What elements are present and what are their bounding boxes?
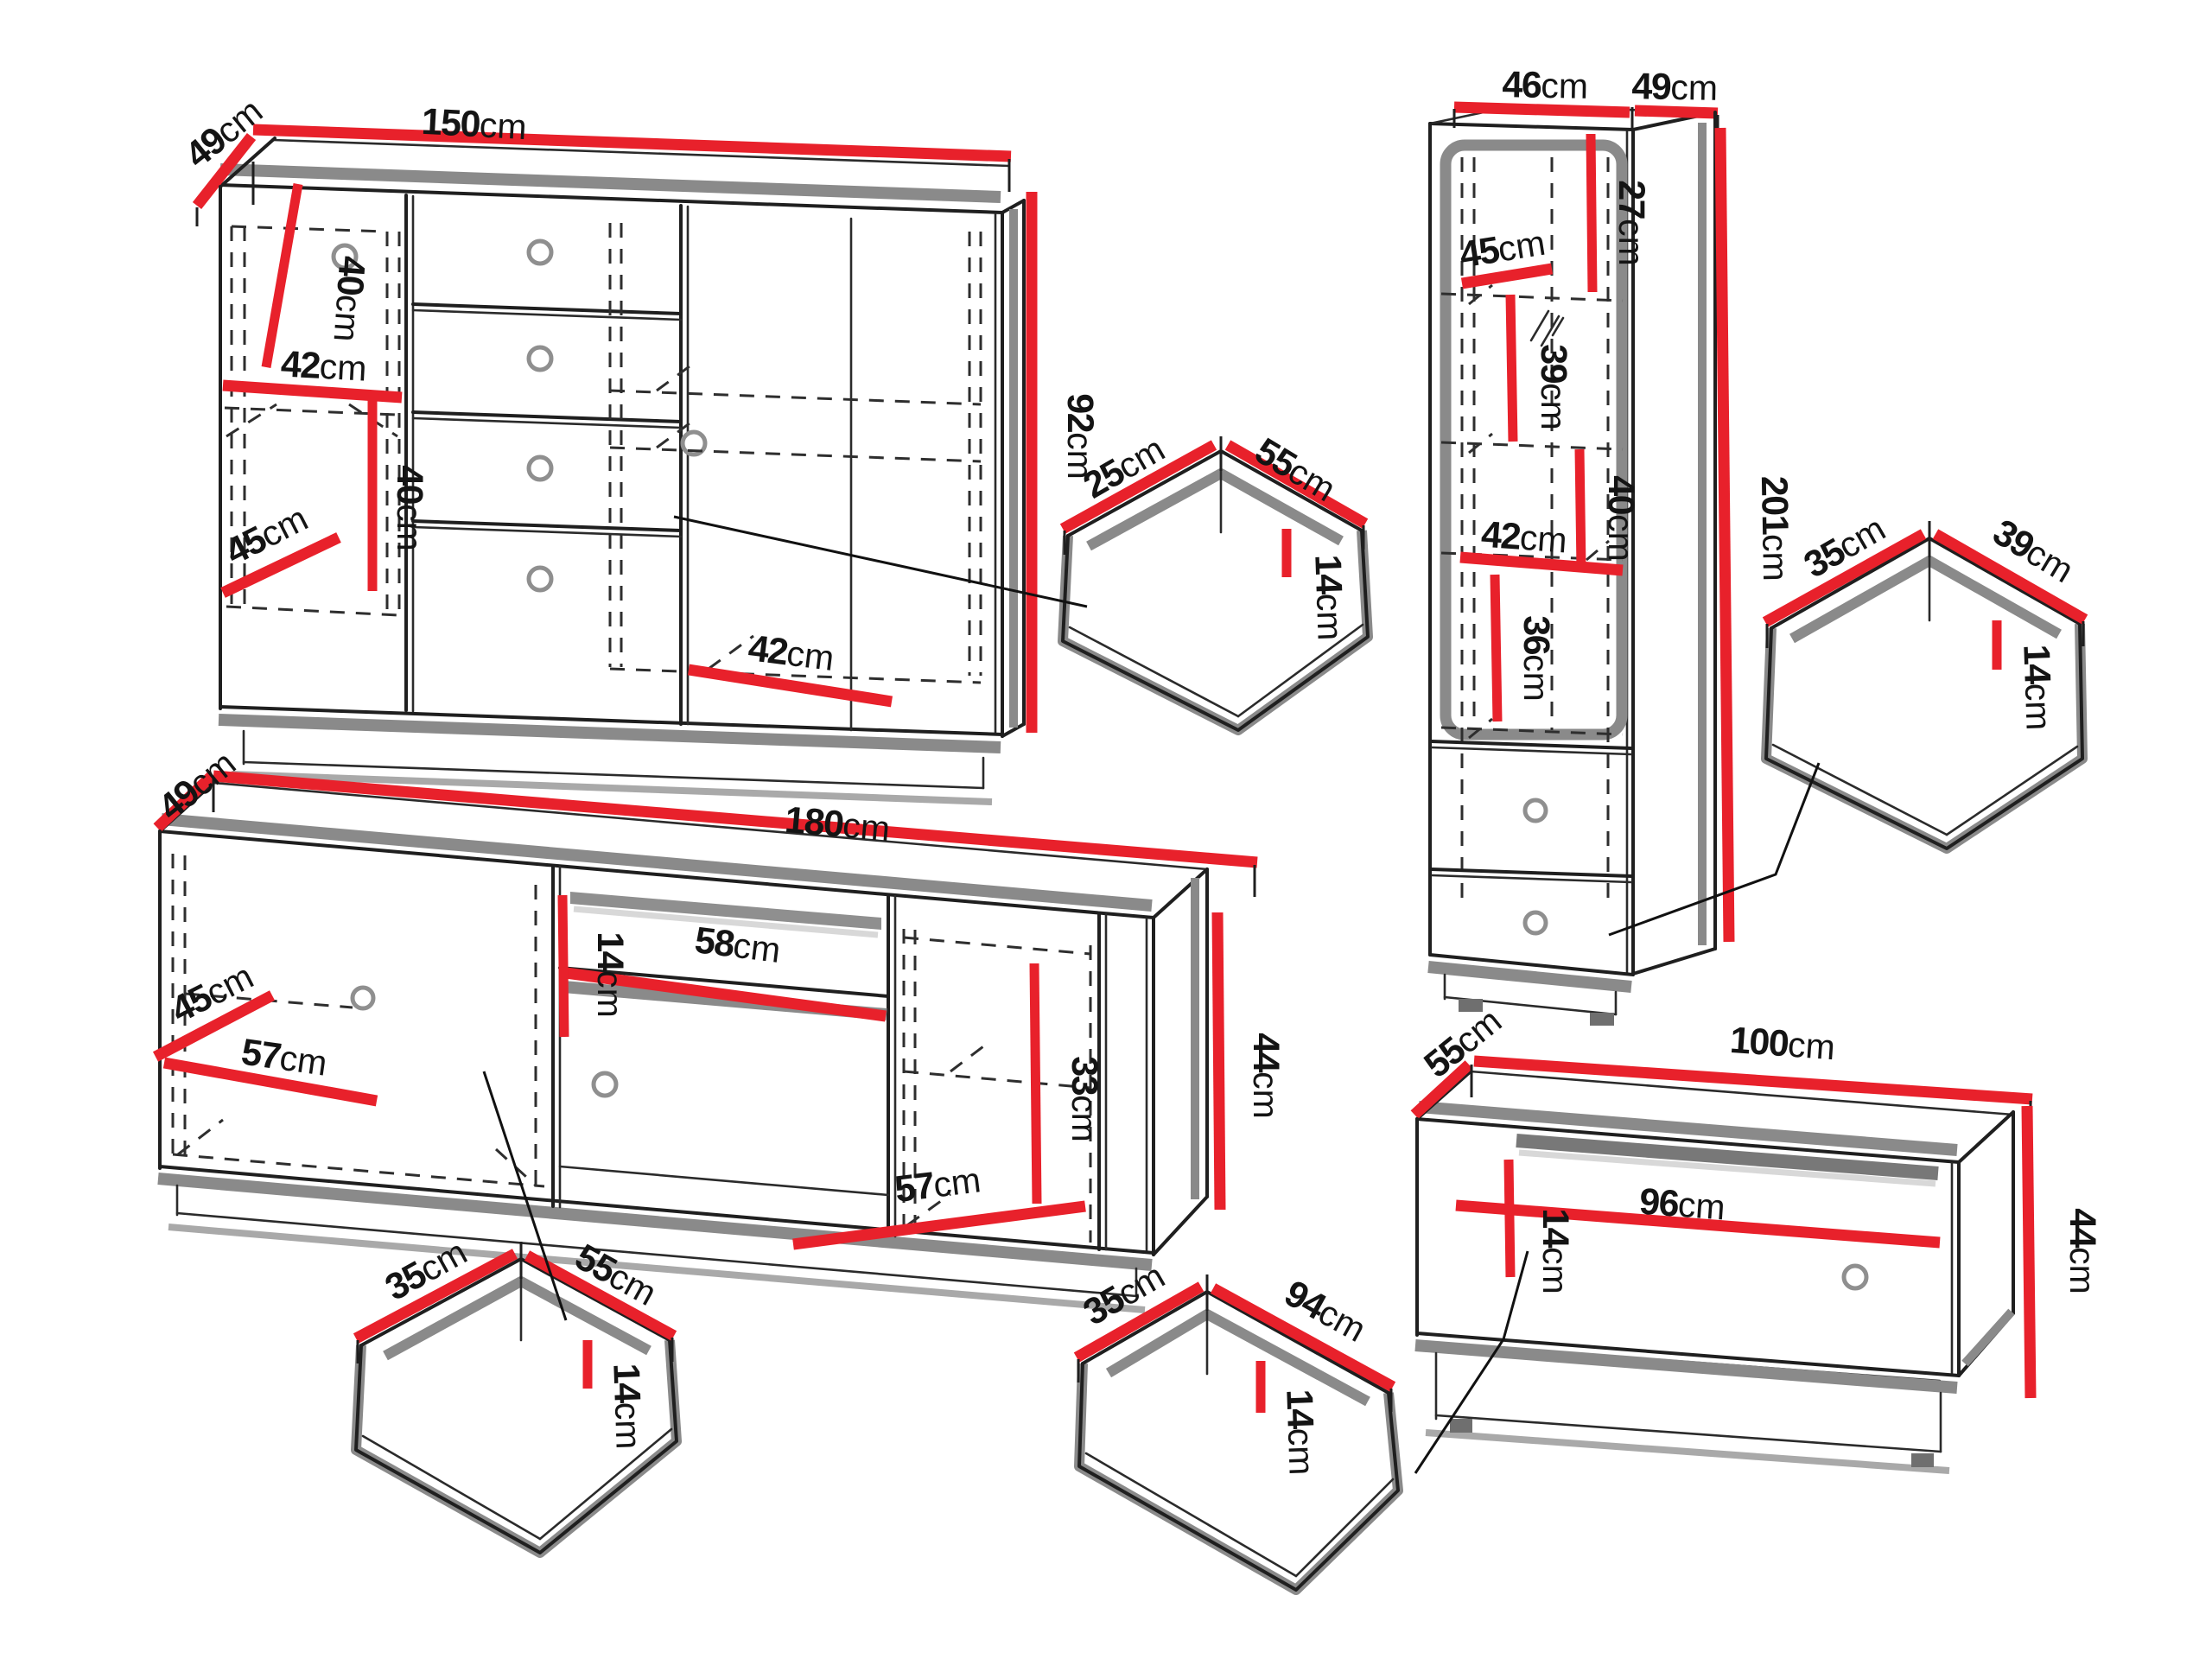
- drawer-39x35: 35cm 39cm 14cm: [1765, 507, 2085, 849]
- dim-label-sideboard-width: 150cm: [421, 101, 528, 148]
- dim-line-internal: [1034, 963, 1037, 1204]
- drawer-knob: [529, 457, 551, 480]
- dim-line-internal: [266, 184, 298, 367]
- dim-label-cabinet-depth: 49cm: [1631, 66, 1718, 109]
- dim-label-internal: 36cm: [1516, 615, 1557, 702]
- drawer-knob: [1525, 800, 1546, 821]
- drawer-knob: [1844, 1266, 1866, 1288]
- dim-line-bench-height: [2027, 1106, 2031, 1398]
- dim-label-internal: 42cm: [746, 627, 836, 679]
- drawer-knob: [1525, 912, 1546, 933]
- dim-label-internal: 45cm: [164, 956, 259, 1032]
- dim-label-drawer-height: 14cm: [2015, 644, 2059, 731]
- dim-line-internal: [1580, 449, 1581, 569]
- drawer-55x35: 35cm 55cm 14cm: [356, 1231, 677, 1553]
- dim-label-internal: 39cm: [1533, 344, 1574, 430]
- dim-label-internal: 57cm: [893, 1159, 983, 1211]
- dim-label-internal: 40cm: [326, 255, 373, 344]
- dim-label-cabinet-height: 201cm: [1753, 475, 1796, 582]
- diagram-canvas: 49cm 150cm 92cm 40cm 42cm 40cm 45cm 42cm…: [0, 0, 2212, 1659]
- tv-stand: 49cm 180cm 45cm 57cm 14cm 58cm 33cm 57cm…: [150, 742, 1287, 1310]
- dim-label-internal: 42cm: [1480, 514, 1569, 562]
- dim-label-internal: 14cm: [1535, 1208, 1576, 1294]
- dim-line-internal: [689, 670, 892, 702]
- dim-label-internal: 96cm: [1638, 1181, 1727, 1229]
- drawer-94x35: 35cm 94cm 14cm: [1077, 1255, 1398, 1590]
- door-knob: [353, 988, 373, 1008]
- dim-label-tvstand-width: 180cm: [783, 799, 892, 849]
- dim-label-drawer-height: 14cm: [605, 1363, 649, 1450]
- sideboard: 49cm 150cm 92cm 40cm 42cm 40cm 45cm 42cm: [177, 90, 1101, 802]
- drawer-knob: [594, 1073, 616, 1096]
- tall-cabinet: 46cm 49cm 27cm 45cm 39cm 40cm 42cm 36cm …: [1428, 64, 1796, 1026]
- dim-label-drawer-height: 14cm: [1278, 1389, 1322, 1476]
- dim-line-internal: [1509, 1160, 1510, 1277]
- dim-line-cabinet-height: [1720, 128, 1729, 942]
- dim-line-internal: [1495, 575, 1497, 721]
- tv-bench: 55cm 100cm 14cm 96cm 44cm: [1414, 1000, 2103, 1471]
- dim-label-bench-height: 44cm: [2062, 1208, 2103, 1294]
- dim-line-internal: [563, 895, 564, 1037]
- drawer-knob: [529, 347, 551, 370]
- dim-label-drawer-height: 14cm: [1306, 554, 1351, 641]
- dim-label-internal: 33cm: [1064, 1056, 1105, 1142]
- drawer-55x25: 25cm 55cm 14cm: [1063, 428, 1368, 730]
- dim-label-bench-width: 100cm: [1728, 1020, 1836, 1068]
- dim-label-internal: 14cm: [589, 931, 631, 1018]
- dim-label-internal: 42cm: [280, 343, 368, 389]
- dim-line-cabinet-width: [1454, 107, 1630, 112]
- dim-label-internal: 40cm: [389, 465, 430, 551]
- dim-label-internal: 27cm: [1611, 180, 1652, 266]
- drawer-knob: [529, 568, 551, 590]
- dim-line-tvstand-height: [1217, 912, 1220, 1210]
- dim-label-tvstand-height: 44cm: [1245, 1033, 1287, 1119]
- dim-line-cabinet-depth: [1635, 111, 1718, 113]
- furniture-dimensions-diagram: 49cm 150cm 92cm 40cm 42cm 40cm 45cm 42cm…: [0, 0, 2212, 1659]
- dim-line-internal: [1591, 134, 1592, 292]
- dim-label-internal: 40cm: [1600, 475, 1642, 562]
- dim-label-cabinet-width: 46cm: [1502, 64, 1588, 107]
- drawer-knob: [529, 241, 551, 264]
- dim-line-internal: [1510, 295, 1513, 442]
